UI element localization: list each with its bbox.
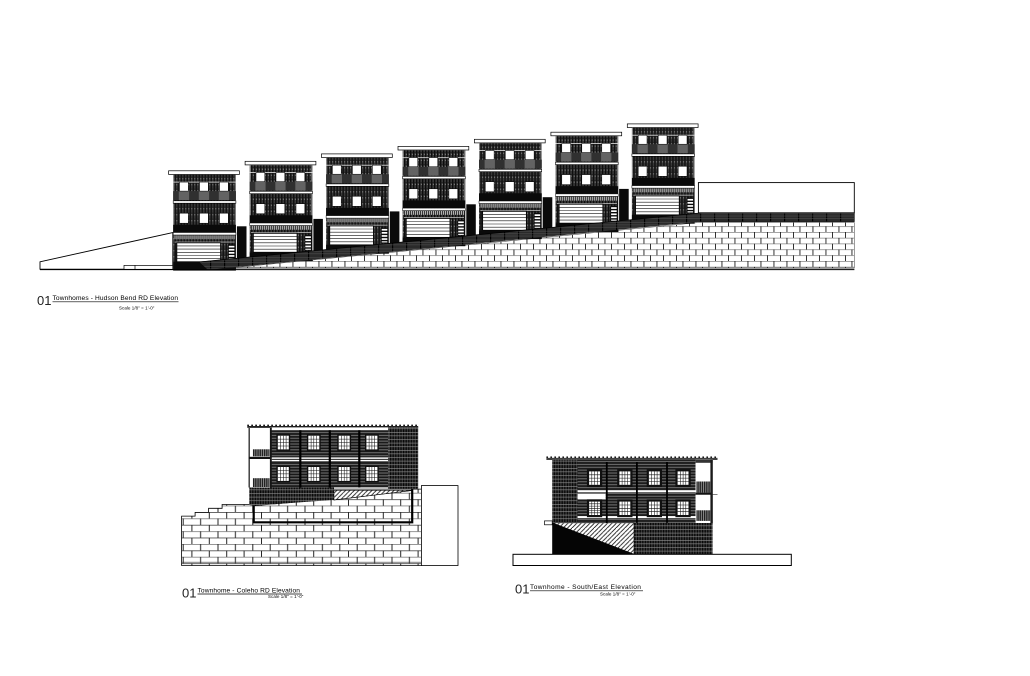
svg-text:Townhome - South/East Elev: Townhome - South/East Elevation: [530, 584, 641, 591]
svg-text:Scale 1/8" = 1'-0": Scale 1/8" = 1'-0": [600, 592, 636, 597]
svg-text:Scale 1/8" = 1'-0": Scale 1/8" = 1'-0": [268, 594, 304, 599]
svg-text:01: 01: [515, 582, 529, 597]
svg-text:01: 01: [182, 586, 196, 601]
svg-text:Townhomes - Hudson Bend RD: Townhomes - Hudson Bend RD Elevation: [53, 295, 179, 302]
svg-text:Scale 1/8" = 1'-0": Scale 1/8" = 1'-0": [119, 306, 155, 311]
svg-text:01: 01: [37, 293, 51, 308]
